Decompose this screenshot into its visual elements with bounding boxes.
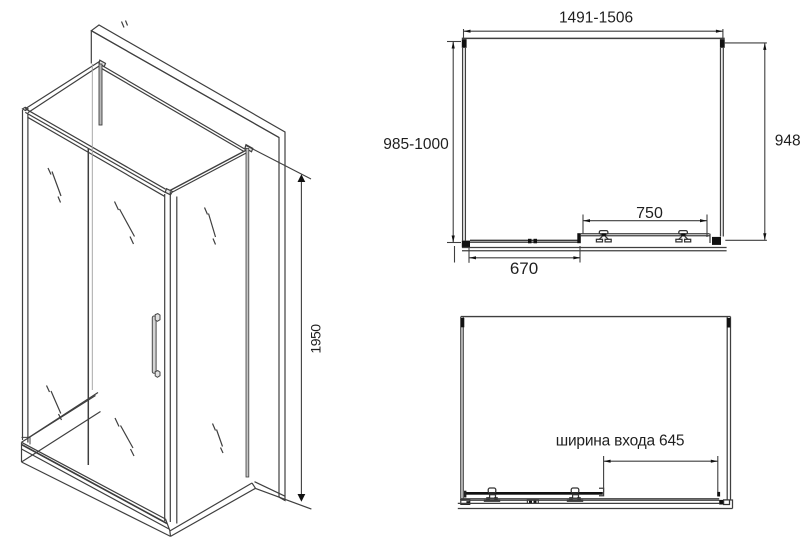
svg-text:948: 948 [775,132,801,149]
svg-text:ширина входа 645: ширина входа 645 [556,433,685,450]
svg-text:1491-1506: 1491-1506 [559,10,633,27]
svg-text:1950: 1950 [308,324,324,354]
svg-text:750: 750 [636,205,663,222]
svg-text:670: 670 [510,259,538,278]
svg-text:985-1000: 985-1000 [383,136,449,153]
